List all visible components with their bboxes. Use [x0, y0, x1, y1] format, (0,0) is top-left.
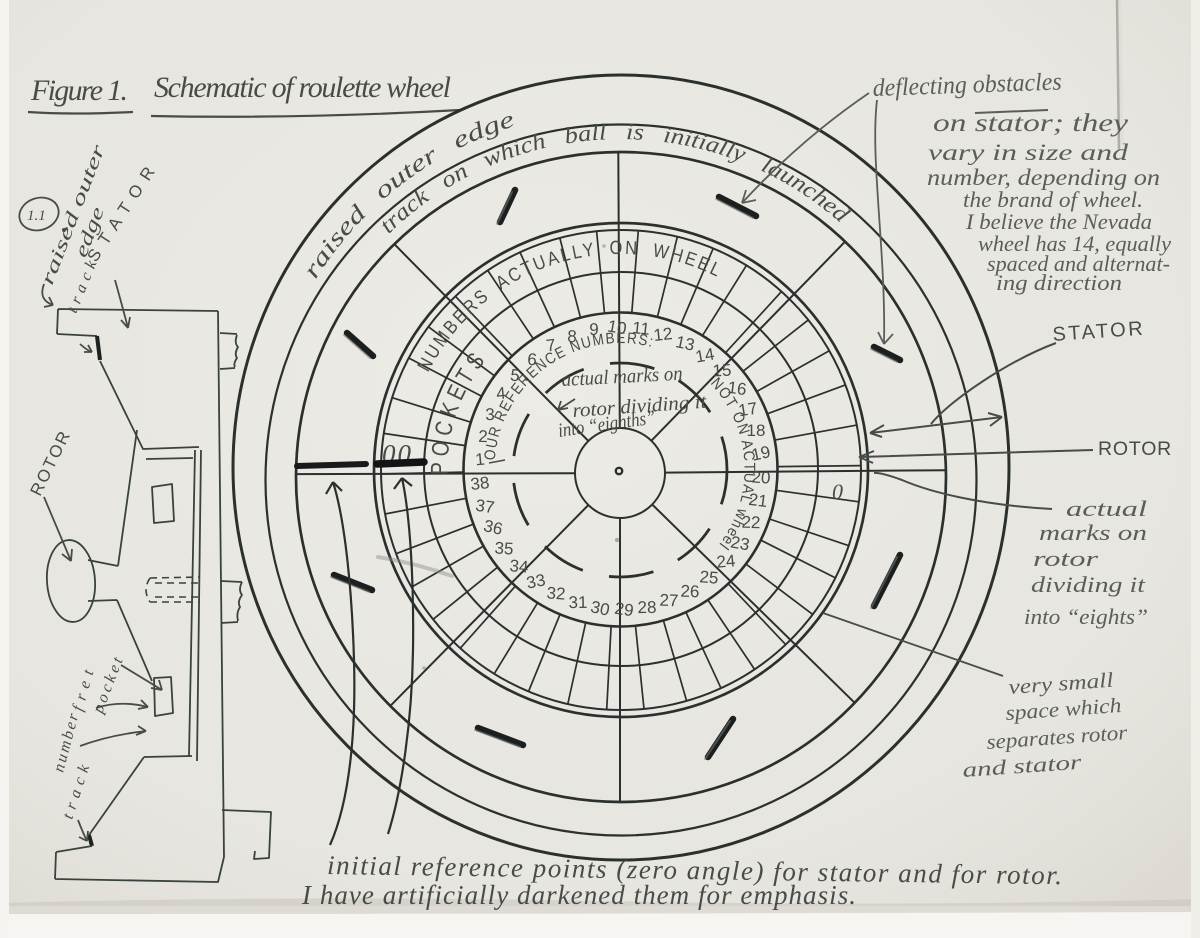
svg-text:4: 4: [495, 384, 506, 404]
svg-text:28: 28: [637, 598, 656, 617]
svg-text:2: 2: [478, 427, 488, 446]
svg-text:31: 31: [568, 593, 587, 612]
svg-text:Figure 1.: Figure 1.: [30, 74, 128, 107]
svg-text:18: 18: [747, 421, 766, 440]
svg-text:Schematic of roulette wheel: Schematic of roulette wheel: [154, 71, 451, 104]
svg-text:27: 27: [659, 591, 679, 611]
svg-text:I have artificially darkened t: I have artificially darkened them for em…: [301, 880, 856, 910]
svg-text:22: 22: [741, 513, 761, 533]
svg-text:into “eights”: into “eights”: [1024, 604, 1148, 629]
svg-text:26: 26: [680, 582, 700, 602]
svg-text:21: 21: [748, 490, 769, 511]
svg-text:33: 33: [525, 570, 547, 592]
svg-text:11: 11: [631, 318, 651, 339]
svg-text:actual: actual: [1066, 496, 1147, 521]
svg-text:37: 37: [474, 496, 495, 517]
svg-text:29: 29: [613, 599, 635, 621]
svg-text:8: 8: [567, 327, 577, 346]
svg-text:32: 32: [546, 583, 566, 603]
svg-text:1: 1: [474, 450, 485, 470]
svg-text:6: 6: [526, 350, 537, 370]
svg-text:17: 17: [737, 399, 759, 421]
svg-text:rotor: rotor: [1033, 546, 1099, 571]
svg-text:3: 3: [485, 405, 495, 424]
svg-text:dividing it: dividing it: [1031, 572, 1146, 597]
svg-text:19: 19: [750, 442, 772, 465]
svg-text:ing direction: ing direction: [996, 270, 1122, 295]
svg-text:0: 0: [832, 479, 843, 504]
svg-text:13: 13: [674, 332, 696, 355]
svg-text:1.1: 1.1: [27, 208, 46, 224]
svg-text:16: 16: [727, 378, 748, 399]
svg-text:marks on: marks on: [1039, 520, 1147, 545]
svg-text:34: 34: [509, 556, 530, 577]
svg-text:30: 30: [589, 597, 611, 620]
svg-text:38: 38: [470, 473, 491, 494]
svg-text:ROTOR: ROTOR: [1098, 438, 1172, 460]
svg-text:35: 35: [494, 538, 514, 558]
svg-text:on stator; they: on stator; they: [933, 110, 1129, 137]
svg-text:9: 9: [589, 320, 599, 339]
svg-text:vary in size and: vary in size and: [928, 140, 1129, 165]
svg-text:20: 20: [751, 467, 771, 487]
svg-text:25: 25: [699, 567, 720, 588]
svg-text:10: 10: [606, 317, 628, 339]
svg-text:12: 12: [653, 324, 674, 345]
